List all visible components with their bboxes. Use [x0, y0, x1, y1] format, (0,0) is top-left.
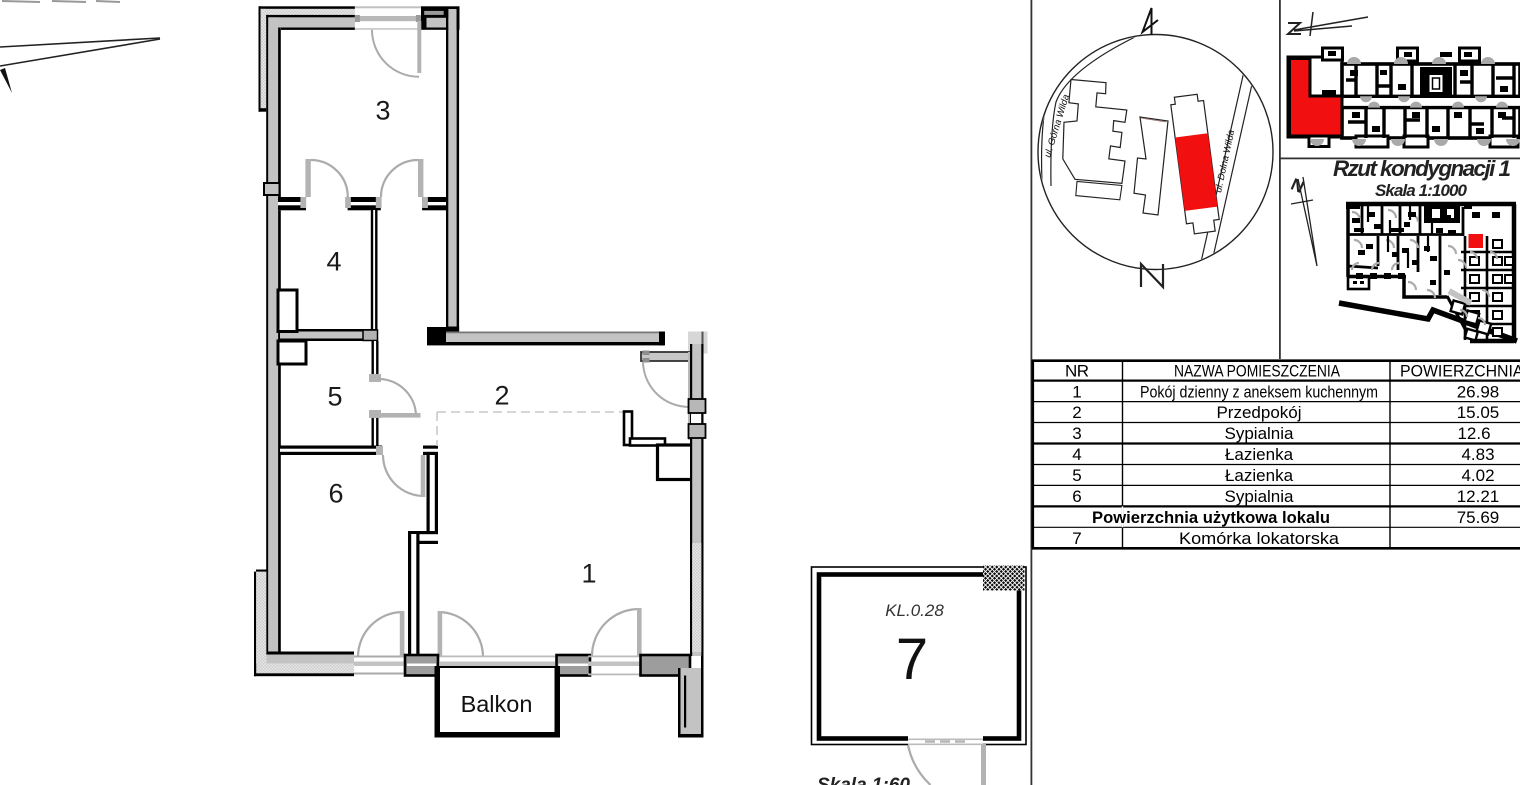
svg-text:Powierzchnia użytkowa lokalu: Powierzchnia użytkowa lokalu: [1092, 508, 1330, 527]
svg-text:7: 7: [1072, 529, 1081, 548]
svg-text:Komórka lokatorska: Komórka lokatorska: [1179, 529, 1340, 548]
svg-text:3: 3: [1072, 424, 1081, 443]
svg-text:4.83: 4.83: [1461, 445, 1494, 464]
svg-text:Przedpokój: Przedpokój: [1216, 403, 1301, 422]
svg-text:NR: NR: [1065, 362, 1089, 381]
svg-text:6: 6: [1072, 487, 1081, 506]
svg-text:4: 4: [1072, 445, 1081, 464]
svg-text:15.05: 15.05: [1457, 403, 1500, 422]
svg-text:1: 1: [581, 559, 596, 589]
svg-text:4: 4: [326, 247, 341, 277]
svg-text:N: N: [1288, 175, 1307, 197]
svg-text:1: 1: [1072, 382, 1081, 401]
svg-text:12.6: 12.6: [1457, 424, 1490, 443]
svg-text:NAZWA POMIESZCZENIA: NAZWA POMIESZCZENIA: [1174, 362, 1341, 381]
svg-text:26.98: 26.98: [1457, 382, 1500, 401]
svg-text:Łazienka: Łazienka: [1225, 445, 1294, 464]
svg-text:Sypialnia: Sypialnia: [1225, 487, 1295, 506]
svg-text:Skala 1:1000: Skala 1:1000: [1375, 181, 1468, 200]
svg-text:Rzut kondygnacji 1: Rzut kondygnacji 1: [1333, 156, 1511, 181]
svg-text:7: 7: [896, 627, 928, 692]
svg-text:Pokój dzienny z aneksem kuchen: Pokój dzienny z aneksem kuchennym: [1140, 382, 1378, 401]
svg-text:5: 5: [327, 382, 342, 412]
svg-text:2: 2: [494, 381, 509, 411]
svg-text:4.02: 4.02: [1461, 466, 1494, 485]
svg-text:6: 6: [328, 479, 343, 509]
svg-text:75.69: 75.69: [1457, 508, 1500, 527]
svg-text:Skala 1:60: Skala 1:60: [817, 775, 910, 785]
svg-text:KL.0.28: KL.0.28: [885, 601, 944, 620]
svg-text:12.21: 12.21: [1457, 487, 1500, 506]
svg-text:POWIERZCHNIA [m²: POWIERZCHNIA [m²: [1400, 362, 1520, 381]
svg-text:3: 3: [375, 96, 390, 126]
svg-text:Sypialnia: Sypialnia: [1225, 424, 1295, 443]
svg-text:Balkon: Balkon: [461, 691, 533, 717]
svg-text:Łazienka: Łazienka: [1225, 466, 1294, 485]
svg-text:5: 5: [1072, 466, 1081, 485]
svg-text:2: 2: [1072, 403, 1081, 422]
